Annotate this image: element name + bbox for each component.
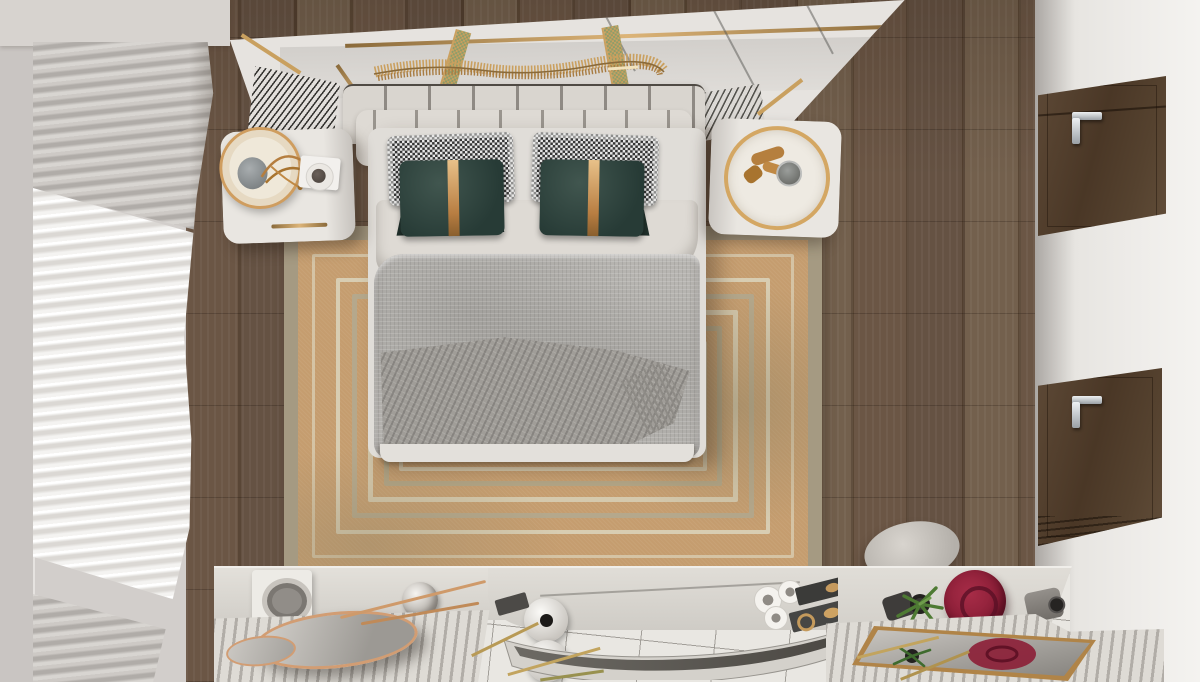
nightstand-left: [220, 128, 356, 245]
nightstand-left-trim: [271, 223, 327, 229]
red-vase-reflection: [968, 638, 1036, 670]
bedroom-top-view: Top-down 3D render of a modern luxury be…: [0, 0, 1200, 682]
nightstand-right: [708, 118, 842, 238]
pillow-brass-band-right: [587, 160, 599, 236]
bowl-box: [252, 570, 312, 622]
brass-mirror-tray: [850, 624, 1098, 682]
throw-fringe: [621, 360, 697, 449]
brass-disc-2: [823, 606, 841, 620]
pillow-teal-left: [399, 159, 504, 237]
pillow-brass-band-left: [447, 160, 459, 236]
duvet: [374, 254, 700, 458]
pillow-teal-right: [539, 159, 644, 237]
left-wall-edge: [0, 0, 35, 682]
wardrobe-handle-lower-stem: [1072, 402, 1080, 428]
wardrobe-door-lower: [1038, 368, 1162, 546]
wardrobe-handle-lower: [1072, 396, 1106, 430]
sculpture-comb-main: [375, 59, 663, 72]
bed: [368, 128, 706, 458]
wardrobe-handle-upper-stem: [1072, 118, 1080, 144]
foot-bench: [380, 444, 694, 462]
cup-3: [764, 606, 788, 630]
sculpture-highlight: [608, 67, 638, 69]
top-left-wall: [0, 0, 230, 46]
wardrobe-door-upper: [1038, 76, 1166, 236]
throw-blanket: [374, 332, 700, 462]
wardrobe-handle-upper: [1072, 112, 1106, 146]
